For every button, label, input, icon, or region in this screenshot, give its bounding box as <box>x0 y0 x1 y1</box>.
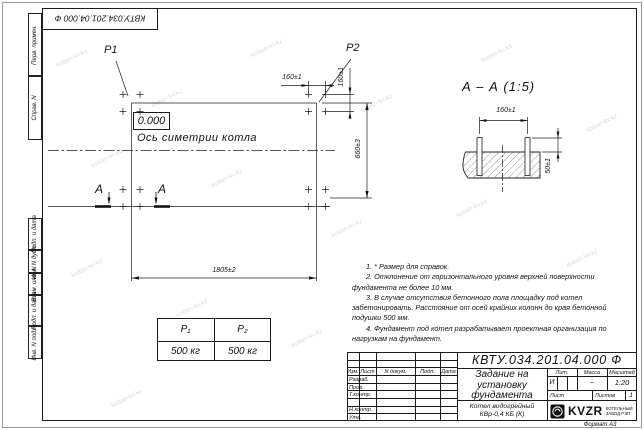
tb-listov-label: Листов <box>595 393 615 399</box>
section-letter-1: А <box>95 183 103 196</box>
tb-grid-line <box>347 367 457 368</box>
tb-grid-line <box>347 398 457 399</box>
note-4: 4. Фундамент под котел разрабатывает про… <box>352 324 636 345</box>
loads-table-value-p2: 500 кг <box>214 346 271 357</box>
tb-grid-line <box>415 352 416 421</box>
tb-grid-line <box>547 376 637 377</box>
note-3: 3. В случае отсутствия бетонного пола пл… <box>352 293 636 324</box>
tb-massa-value: – <box>577 379 607 387</box>
tb-grid-line <box>557 376 558 390</box>
loads-table-value-p1: 500 кг <box>157 346 214 357</box>
section-letter-2: А <box>158 183 166 196</box>
tb-title: Задание на установку фундамента <box>459 370 545 402</box>
plan-load-label-p1: P1 <box>104 44 117 56</box>
dim-width-1805: 1805±2 <box>131 267 317 275</box>
elevation-mark: 0.000 <box>134 115 169 127</box>
elevation-mark-box: 0.000 <box>133 112 170 130</box>
tb-grid-line <box>440 352 441 421</box>
tb-grid-line <box>567 376 568 390</box>
loads-table-header-p2: P₂ <box>214 324 271 335</box>
tb-massa-header: Масса <box>577 370 607 376</box>
tb-grid-line <box>347 413 457 414</box>
dim-depth-660: 660±3 <box>355 129 363 169</box>
plan-load-label-p2: P2 <box>346 42 359 54</box>
tb-masshtab-value: 1:20 <box>607 379 637 387</box>
tb-masshtab-header: Масштаб <box>607 370 637 376</box>
dim-bolt-spacing-v: 160±1 <box>338 57 346 97</box>
tb-product: Котел водогрейный КВр-0,4 КБ (К) <box>459 403 545 419</box>
tb-header-podp: Подп. <box>415 369 440 375</box>
kvzr-logo-icon <box>550 404 565 419</box>
format-label: Формат А3 <box>560 422 640 429</box>
dim-bolt-spacing-h: 160±1 <box>272 74 312 82</box>
drawing-sheet: kotlan-kv.kz kotlan-kv.kz kotlan-kv.kz k… <box>0 0 644 430</box>
tb-grid-line <box>376 352 377 421</box>
section-title: А – А (1:5) <box>462 80 535 94</box>
section-cut-arrow-lines <box>109 192 156 203</box>
loads-table-header-p1: P₁ <box>157 324 214 335</box>
note-1: 1. * Размер для справок. <box>352 262 636 272</box>
company-name: KVZR <box>568 404 603 418</box>
loads-table-divider-h <box>157 341 271 342</box>
dim-section-bolt-height: 50±1 <box>545 146 553 186</box>
tb-row-razrab: Разраб. <box>349 377 369 383</box>
note-2: 2. Отклонение от горизонтального уровня … <box>352 272 636 293</box>
tb-row-utv: Утв. <box>349 415 362 421</box>
tb-header-data: Дата <box>440 369 457 375</box>
tb-lit-header: Лит. <box>547 370 577 376</box>
tb-doc-number: КВТУ.034.201.04.000 Ф <box>457 354 637 368</box>
tb-row-nkontr: Н.контр. <box>349 407 372 413</box>
tb-listov-value: 1 <box>625 392 637 399</box>
tb-grid-line <box>592 390 593 400</box>
company-sub-line2: ЗАВОД РЭП <box>606 411 633 416</box>
dim-section-bolt-spacing: 160±1 <box>486 107 526 115</box>
notes-block: 1. * Размер для справок. 2. Отклонение о… <box>352 262 636 344</box>
tb-header-izm: Изм. <box>347 369 359 375</box>
tb-row-tkontr: Т.контр. <box>349 392 371 398</box>
tb-header-ndokum: N докум. <box>376 369 415 375</box>
boiler-axis-label: Ось симетрии котла <box>137 132 257 144</box>
tb-grid-line <box>347 360 457 361</box>
company-logo-block: KVZR КОТЕЛЬНЫЙ ЗАВОД РЭП <box>550 402 636 420</box>
tb-list-label: Лист <box>550 393 564 399</box>
tb-header-list: Лист <box>359 369 376 375</box>
plan-view-lines <box>48 59 372 281</box>
tb-lit-value: И <box>547 379 557 387</box>
tb-row-prov: Пров. <box>349 385 364 391</box>
